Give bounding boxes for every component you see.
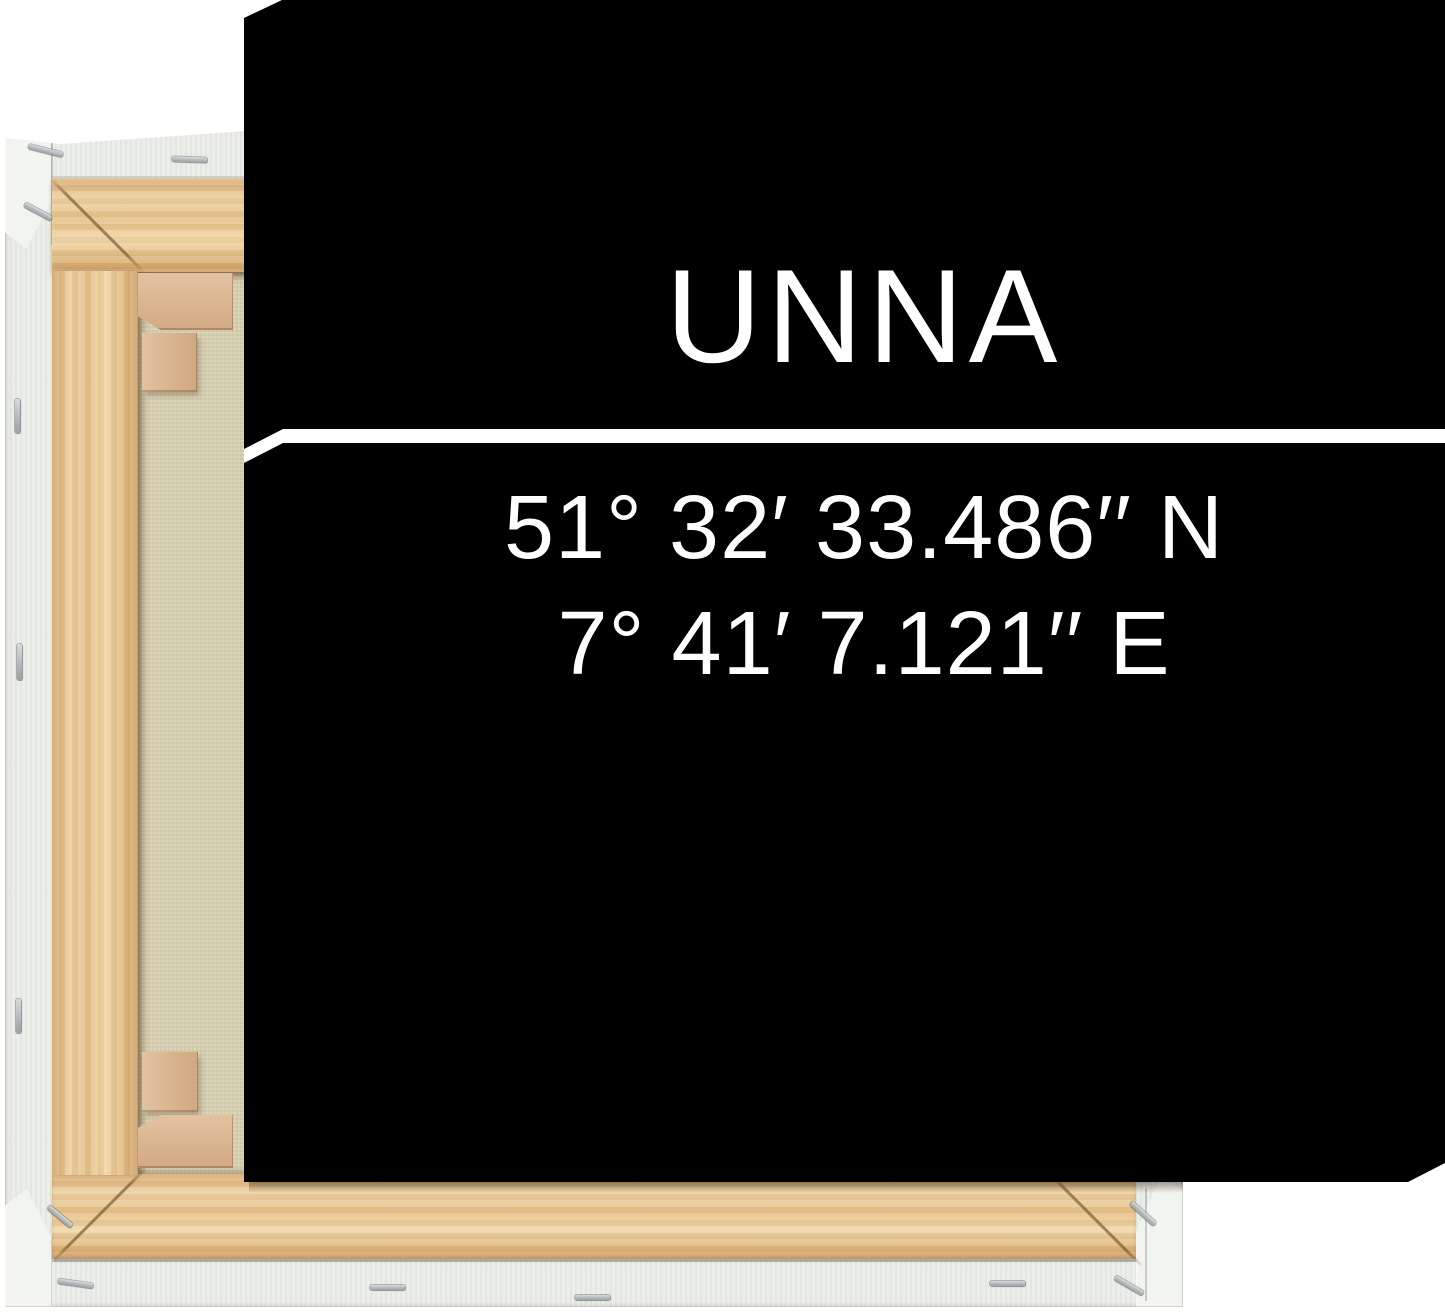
canvas-front-drop-shadow [249,1182,1183,1193]
canvas-front [0,0,1445,1314]
canvas-print-mockup: UNNA 51° 32′ 33.486′′ N 7° 41′ 7.121′′ E [0,0,1445,1314]
divider-line [283,429,1445,443]
canvas-front-face [244,0,1445,1182]
